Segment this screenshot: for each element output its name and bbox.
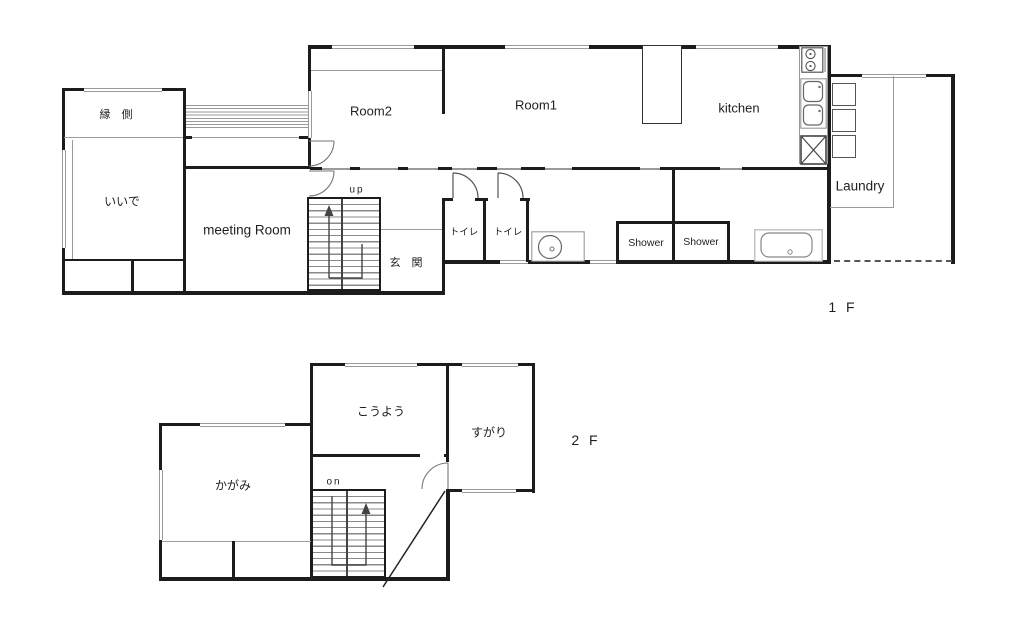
wall — [727, 221, 730, 262]
wall — [526, 198, 529, 262]
room-label-room1: Room1 — [515, 98, 557, 113]
floor-2-label: 2 F — [571, 432, 600, 448]
window — [696, 45, 778, 49]
room-label-kagami: かがみ — [215, 477, 251, 494]
room-label-shower-2: Shower — [683, 236, 719, 248]
crossed-box-icon — [800, 135, 827, 165]
wall — [532, 363, 535, 493]
floor-line — [72, 140, 73, 259]
window — [505, 45, 589, 49]
wall — [616, 221, 619, 262]
genkan-step-line — [380, 229, 442, 230]
window — [462, 363, 518, 367]
wall — [660, 167, 720, 170]
wall — [572, 167, 640, 170]
wall — [398, 167, 408, 170]
wall — [616, 221, 674, 224]
closet-divider — [232, 541, 235, 577]
door-swing-icon — [308, 140, 335, 167]
wall — [62, 291, 445, 295]
room-label-kouyou: こうよう — [357, 403, 405, 420]
wall — [183, 136, 192, 139]
room-label-toilet-1: トイレ — [450, 224, 479, 238]
window — [84, 88, 162, 92]
stove-icon — [801, 47, 826, 73]
door-swing-icon — [452, 172, 479, 199]
stairs-up-arrow-icon — [325, 494, 375, 574]
wall — [521, 167, 545, 170]
room-label-kitchen: kitchen — [718, 101, 759, 116]
closet-line — [62, 259, 185, 261]
window — [345, 363, 417, 367]
window — [500, 260, 528, 264]
laundry-partition — [830, 207, 894, 208]
stairs-up-arrow-icon — [320, 204, 370, 286]
laundry-partition — [893, 76, 894, 208]
room-label-meeting: meeting Room — [203, 223, 291, 238]
wall — [308, 45, 311, 91]
wall — [310, 454, 420, 457]
closet-line — [162, 541, 312, 542]
wall — [477, 167, 497, 170]
wall — [672, 170, 675, 262]
wall — [438, 167, 452, 170]
door-swing-icon — [497, 172, 524, 199]
door-swing-icon — [421, 462, 449, 490]
room-label-genkan: 玄 関 — [389, 254, 426, 270]
corridor-line — [186, 137, 308, 138]
washbasin-icon — [531, 231, 585, 262]
washing-machine-icon — [832, 135, 856, 158]
bathtub-icon — [754, 229, 823, 262]
wall — [483, 198, 486, 262]
stair-on-label: on — [326, 477, 341, 488]
wall — [674, 221, 730, 224]
closet-line — [311, 70, 442, 71]
window — [332, 45, 414, 49]
wall — [951, 74, 955, 264]
stair-up-label: up — [349, 185, 364, 196]
floor-2-plan: かがみ こうよう すがり on 2 F — [0, 340, 1017, 631]
room-label-toilet-2: トイレ — [494, 224, 523, 238]
room-label-engawa: 縁 側 — [99, 106, 136, 122]
window — [462, 489, 516, 493]
window — [308, 91, 312, 138]
partition-column — [642, 45, 682, 124]
window — [62, 150, 66, 248]
engawa-deck-steps — [186, 105, 308, 128]
room-label-laundry: Laundry — [836, 179, 885, 194]
room-label-shower-1: Shower — [628, 237, 664, 249]
floor-1-plan: 縁 側 いいで meeting Room Room2 Room1 kitchen… — [0, 0, 1017, 340]
wall — [446, 363, 449, 462]
door-swing-icon — [308, 170, 335, 197]
room-label-room2: Room2 — [350, 104, 392, 119]
floor-1-label: 1 F — [828, 299, 857, 315]
sloped-ceiling-line — [382, 490, 447, 589]
wall — [442, 199, 445, 294]
window — [590, 260, 616, 264]
wall — [350, 167, 360, 170]
wall — [516, 489, 535, 492]
room-label-sugari: すがり — [471, 424, 507, 441]
deck-dashed-edge — [834, 260, 952, 262]
double-sink-icon — [800, 78, 827, 129]
floor-plan-canvas: 縁 側 いいで meeting Room Room2 Room1 kitchen… — [0, 0, 1017, 631]
wall — [183, 166, 310, 169]
room-label-iide: いいで — [104, 193, 140, 210]
window — [159, 470, 163, 540]
closet-divider — [131, 259, 134, 293]
window — [200, 423, 285, 427]
wall — [444, 454, 448, 457]
floor-line — [64, 137, 183, 138]
washing-machine-icon — [832, 109, 856, 132]
wall — [442, 45, 445, 114]
washing-machine-icon — [832, 83, 856, 106]
wall — [742, 167, 828, 170]
